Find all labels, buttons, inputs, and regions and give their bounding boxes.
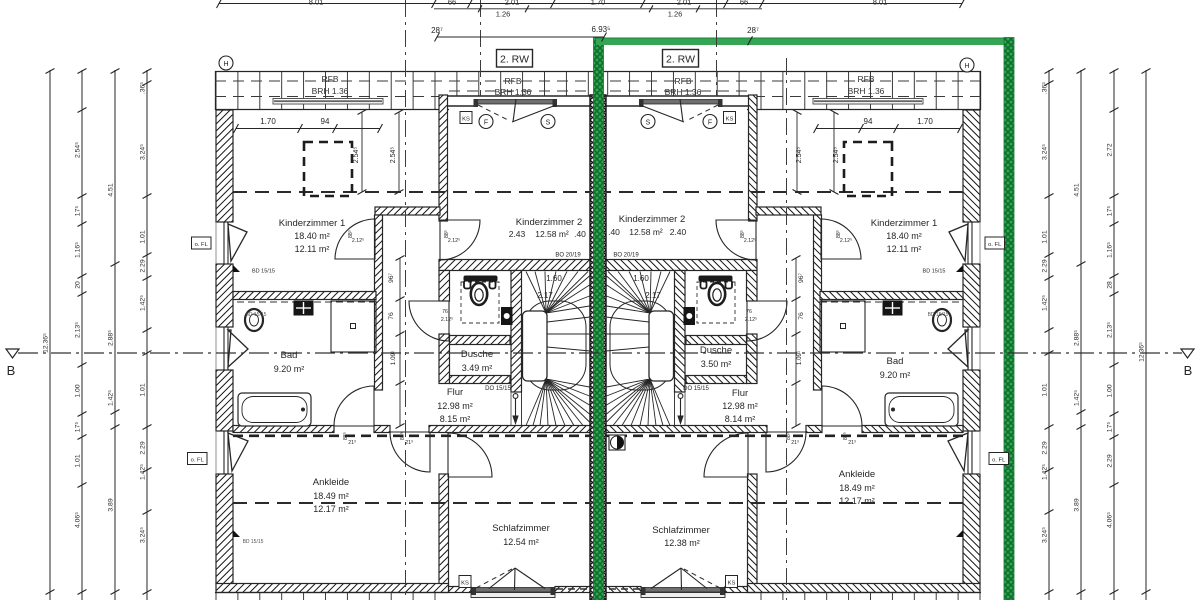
svg-text:Kinderzimmer 2: Kinderzimmer 2 <box>619 214 686 225</box>
svg-text:3.24⁵: 3.24⁵ <box>1042 527 1049 543</box>
svg-text:Ankleide: Ankleide <box>313 477 349 488</box>
svg-text:.40: .40 <box>608 227 620 237</box>
svg-text:B: B <box>7 363 16 378</box>
svg-text:8.01: 8.01 <box>873 0 888 7</box>
svg-text:2.29: 2.29 <box>1042 259 1049 272</box>
svg-text:KS: KS <box>728 581 736 587</box>
svg-text:3.89: 3.89 <box>1074 498 1081 511</box>
svg-text:2.54⁵: 2.54⁵ <box>75 142 82 158</box>
svg-text:2.01: 2.01 <box>505 0 520 7</box>
svg-text:2.17: 2.17 <box>537 291 553 300</box>
svg-text:12.54 m²: 12.54 m² <box>503 537 539 547</box>
svg-text:1.60: 1.60 <box>633 274 649 283</box>
svg-text:Bad: Bad <box>887 356 904 367</box>
svg-text:Kinderzimmer 1: Kinderzimmer 1 <box>279 218 346 229</box>
svg-text:18.40 m²: 18.40 m² <box>886 231 922 241</box>
svg-text:Bad: Bad <box>281 350 298 361</box>
svg-text:18.49 m²: 18.49 m² <box>313 491 349 501</box>
svg-text:21³: 21³ <box>791 440 799 446</box>
svg-text:2.13⁵: 2.13⁵ <box>1107 322 1114 338</box>
svg-text:H: H <box>223 61 228 68</box>
svg-text:88⁵: 88⁵ <box>740 230 746 238</box>
svg-text:4.51: 4.51 <box>108 183 115 196</box>
svg-text:66: 66 <box>740 0 748 7</box>
svg-text:Schlafzimmer: Schlafzimmer <box>492 523 550 534</box>
svg-text:2.12⁵: 2.12⁵ <box>745 317 757 323</box>
svg-text:1.70: 1.70 <box>917 117 933 126</box>
svg-text:S: S <box>546 120 551 127</box>
svg-text:88⁵: 88⁵ <box>786 432 792 440</box>
svg-text:BD 15/15: BD 15/15 <box>246 312 267 318</box>
svg-text:2.72: 2.72 <box>1107 143 1114 156</box>
svg-text:S: S <box>646 120 651 127</box>
svg-text:2.29: 2.29 <box>140 259 147 272</box>
svg-text:1.16⁵: 1.16⁵ <box>75 242 82 258</box>
svg-text:2.13⁵: 2.13⁵ <box>75 322 82 338</box>
svg-text:BD 15/15: BD 15/15 <box>243 539 264 545</box>
svg-text:1.09¹: 1.09¹ <box>796 351 803 365</box>
svg-text:17⁵: 17⁵ <box>75 206 82 217</box>
svg-text:BD 15/15: BD 15/15 <box>923 269 946 275</box>
svg-text:2.12⁵: 2.12⁵ <box>840 238 852 244</box>
svg-text:2.88⁵: 2.88⁵ <box>108 330 115 346</box>
svg-text:12.36⁵: 12.36⁵ <box>43 333 50 353</box>
svg-text:2.29: 2.29 <box>1042 441 1049 454</box>
svg-text:H: H <box>964 63 969 70</box>
svg-text:2. RW: 2. RW <box>666 54 695 66</box>
svg-text:12.58 m²: 12.58 m² <box>629 227 663 237</box>
svg-text:12.17 m²: 12.17 m² <box>313 504 349 514</box>
svg-text:BD 15/15: BD 15/15 <box>928 312 949 318</box>
svg-text:2.54⁵: 2.54⁵ <box>833 147 840 164</box>
svg-text:17⁵: 17⁵ <box>75 422 82 433</box>
svg-text:1.01: 1.01 <box>140 230 147 243</box>
svg-text:Ankleide: Ankleide <box>839 469 875 480</box>
svg-text:17⁵: 17⁵ <box>1107 206 1114 217</box>
svg-text:BO 20/19: BO 20/19 <box>555 253 581 259</box>
svg-text:2.29: 2.29 <box>1107 454 1114 467</box>
svg-text:88⁵: 88⁵ <box>836 230 842 238</box>
svg-text:2.54⁵: 2.54⁵ <box>353 147 360 164</box>
svg-text:88⁵: 88⁵ <box>343 432 349 440</box>
svg-text:3.24⁵: 3.24⁵ <box>140 527 147 543</box>
svg-text:1.01: 1.01 <box>1042 383 1049 396</box>
svg-text:BO 20/19: BO 20/19 <box>613 253 639 259</box>
svg-text:1.16⁵: 1.16⁵ <box>1107 242 1114 258</box>
svg-text:1.01: 1.01 <box>140 383 147 396</box>
svg-text:Dusche: Dusche <box>700 345 732 356</box>
svg-text:2.17: 2.17 <box>645 291 661 300</box>
svg-text:3.89: 3.89 <box>108 498 115 511</box>
svg-text:1.00: 1.00 <box>75 384 82 397</box>
svg-text:3.24⁵: 3.24⁵ <box>1042 144 1049 160</box>
svg-text:o. FL: o. FL <box>195 242 209 248</box>
svg-text:2.54⁵: 2.54⁵ <box>796 147 803 164</box>
svg-text:12.17 m²: 12.17 m² <box>839 496 875 506</box>
svg-text:.36⁵: .36⁵ <box>140 82 147 94</box>
svg-text:1.09¹: 1.09¹ <box>390 351 397 365</box>
svg-text:12.58 m²: 12.58 m² <box>535 229 569 239</box>
svg-text:Kinderzimmer 2: Kinderzimmer 2 <box>516 217 583 228</box>
svg-text:Flur: Flur <box>447 387 463 398</box>
svg-text:20: 20 <box>75 281 82 289</box>
svg-text:KS: KS <box>462 117 470 123</box>
svg-text:21³: 21³ <box>348 440 356 446</box>
svg-text:21³: 21³ <box>848 440 856 446</box>
svg-text:28⁷: 28⁷ <box>431 26 443 35</box>
svg-text:RFB: RFB <box>505 76 522 86</box>
svg-text:18.49 m²: 18.49 m² <box>839 483 875 493</box>
svg-text:Dusche: Dusche <box>461 349 493 360</box>
svg-text:88⁵: 88⁵ <box>400 432 406 440</box>
svg-text:6.93⁵: 6.93⁵ <box>592 25 611 34</box>
svg-text:BRH 1.36: BRH 1.36 <box>665 87 702 97</box>
svg-text:.36⁵: .36⁵ <box>1042 82 1049 94</box>
svg-text:BRH 1.36: BRH 1.36 <box>495 87 532 97</box>
svg-text:2.29: 2.29 <box>140 441 147 454</box>
svg-text:2.12⁵: 2.12⁵ <box>448 238 460 244</box>
svg-text:88⁵: 88⁵ <box>444 230 450 238</box>
svg-text:2.40: 2.40 <box>670 227 687 237</box>
svg-text:88⁵: 88⁵ <box>348 230 354 238</box>
svg-text:2.12⁵: 2.12⁵ <box>352 238 364 244</box>
svg-text:88⁵: 88⁵ <box>843 432 849 440</box>
svg-text:B: B <box>1184 363 1193 378</box>
svg-text:18.40 m²: 18.40 m² <box>294 231 330 241</box>
svg-text:RFB: RFB <box>675 76 692 86</box>
svg-text:3.50 m²: 3.50 m² <box>701 359 732 369</box>
svg-text:BD 15/15: BD 15/15 <box>252 269 275 275</box>
svg-text:2. RW: 2. RW <box>500 54 529 66</box>
svg-text:12.11 m²: 12.11 m² <box>887 244 922 254</box>
svg-text:9.20 m²: 9.20 m² <box>880 370 911 380</box>
svg-text:2.12⁵: 2.12⁵ <box>744 238 756 244</box>
svg-text:4.06⁵: 4.06⁵ <box>1107 512 1114 528</box>
svg-text:BRH 1.36: BRH 1.36 <box>312 86 349 96</box>
svg-text:.40: .40 <box>574 229 586 239</box>
svg-text:1.01: 1.01 <box>75 454 82 467</box>
svg-text:17⁵: 17⁵ <box>1107 422 1114 433</box>
svg-text:RFB: RFB <box>322 74 339 84</box>
svg-text:1.70: 1.70 <box>591 0 606 7</box>
svg-text:1.60: 1.60 <box>546 274 562 283</box>
svg-text:KS: KS <box>726 117 734 123</box>
svg-text:Schlafzimmer: Schlafzimmer <box>652 525 710 536</box>
svg-text:BRH 1.36: BRH 1.36 <box>848 86 885 96</box>
svg-text:1.42⁵: 1.42⁵ <box>1074 390 1081 406</box>
svg-text:1.70: 1.70 <box>260 117 276 126</box>
svg-text:76: 76 <box>442 309 448 315</box>
svg-text:2.01: 2.01 <box>677 0 692 7</box>
svg-text:66: 66 <box>448 0 456 7</box>
svg-text:21³: 21³ <box>405 440 413 446</box>
svg-text:2.12⁵: 2.12⁵ <box>441 317 453 323</box>
svg-text:4.51: 4.51 <box>1074 183 1081 196</box>
svg-text:3.49 m²: 3.49 m² <box>462 363 493 373</box>
svg-text:F: F <box>484 120 488 127</box>
svg-text:76: 76 <box>798 312 805 320</box>
svg-text:1.42⁵: 1.42⁵ <box>1042 295 1049 311</box>
svg-text:1.00: 1.00 <box>1107 384 1114 397</box>
svg-text:o. FL: o. FL <box>992 458 1006 464</box>
svg-text:1.42⁵: 1.42⁵ <box>108 390 115 406</box>
svg-text:12.98 m²: 12.98 m² <box>437 401 473 411</box>
svg-text:76: 76 <box>746 309 752 315</box>
svg-text:DO 15/15: DO 15/15 <box>485 386 511 392</box>
svg-text:76: 76 <box>388 312 395 320</box>
svg-text:1.26: 1.26 <box>496 10 511 19</box>
svg-text:12.38 m²: 12.38 m² <box>664 538 700 548</box>
svg-text:o. FL: o. FL <box>988 242 1002 248</box>
svg-text:1.42⁵: 1.42⁵ <box>1042 464 1049 480</box>
svg-text:2.43: 2.43 <box>509 229 526 239</box>
svg-text:8.01: 8.01 <box>309 0 324 7</box>
svg-text:DO 15/15: DO 15/15 <box>683 386 709 392</box>
svg-text:9.20 m²: 9.20 m² <box>274 364 305 374</box>
svg-text:28: 28 <box>1107 281 1114 289</box>
svg-text:2.88⁵: 2.88⁵ <box>1074 330 1081 346</box>
svg-text:28⁷: 28⁷ <box>747 26 759 35</box>
svg-text:94: 94 <box>864 117 873 126</box>
svg-text:o. FL: o. FL <box>191 458 205 464</box>
svg-text:Kinderzimmer 1: Kinderzimmer 1 <box>871 218 938 229</box>
svg-text:8.15 m²: 8.15 m² <box>440 414 471 424</box>
svg-text:RFB: RFB <box>858 74 875 84</box>
svg-text:12.98 m²: 12.98 m² <box>722 401 758 411</box>
svg-text:3.24⁵: 3.24⁵ <box>140 144 147 160</box>
svg-text:F: F <box>708 120 712 127</box>
svg-text:1.42⁵: 1.42⁵ <box>140 464 147 480</box>
svg-text:96⁷: 96⁷ <box>388 272 395 283</box>
svg-text:96⁷: 96⁷ <box>798 272 805 283</box>
svg-text:12.11 m²: 12.11 m² <box>295 244 330 254</box>
svg-text:8.14 m²: 8.14 m² <box>725 414 756 424</box>
svg-text:12.36⁵: 12.36⁵ <box>1139 342 1146 362</box>
svg-text:2.54⁵: 2.54⁵ <box>390 147 397 164</box>
svg-text:Flur: Flur <box>732 388 748 399</box>
svg-text:KS: KS <box>461 581 469 587</box>
svg-text:94: 94 <box>321 117 330 126</box>
svg-text:1.26: 1.26 <box>668 10 683 19</box>
svg-text:1.01: 1.01 <box>1042 230 1049 243</box>
svg-text:4.06⁵: 4.06⁵ <box>75 512 82 528</box>
svg-text:1.42⁵: 1.42⁵ <box>140 295 147 311</box>
